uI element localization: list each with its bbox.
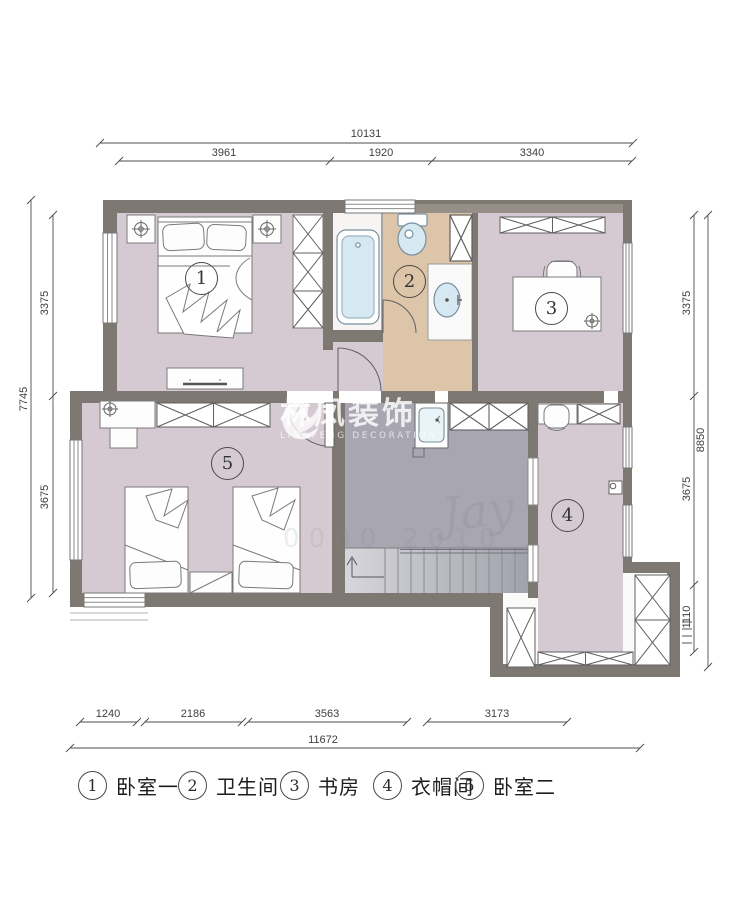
legend-number: 5 (455, 771, 484, 800)
wardrobe (293, 215, 323, 328)
window-top-bath (345, 200, 415, 213)
dim-top-total: 10131 (334, 128, 398, 140)
laundry-sink-icon (415, 403, 448, 448)
dim-right-seg-2: 1110 (681, 585, 693, 649)
window-right-cloakroom-lower (623, 505, 632, 557)
window-right-study (623, 243, 632, 333)
legend-label: 卧室二 (493, 771, 556, 800)
legend-item-bedroom1: 1 卧室一 (78, 771, 179, 799)
wall-control-panel-icon (609, 481, 622, 494)
room-badge-cloakroom: 4 (551, 499, 584, 532)
dim-bottom-seg-1: 2186 (161, 708, 225, 720)
dim-left-total: 7745 (18, 367, 30, 431)
dim-top-seg-0: 3961 (192, 147, 256, 159)
hallway-cabinet (450, 403, 528, 430)
dim-bottom-seg-3: 3173 (465, 708, 529, 720)
wardrobe-left (507, 608, 535, 667)
bathtub-icon (337, 230, 379, 324)
legend-number: 3 (280, 771, 309, 800)
room-badge-bedroom1: 1 (185, 262, 218, 295)
study-wall-cabinet (500, 217, 605, 233)
tv-cabinet (167, 368, 243, 389)
window-bottom-bedroom2 (84, 593, 145, 607)
bay-window-sill-lines (70, 613, 148, 620)
dim-right-seg-1: 3675 (681, 457, 693, 521)
single-bed-a (125, 487, 188, 593)
dim-bottom-seg-2: 3563 (295, 708, 359, 720)
chair (544, 405, 569, 431)
window-left-bedroom2 (70, 440, 82, 560)
room-badge-bathroom: 2 (393, 265, 426, 298)
dim-left-seg-1: 3675 (39, 465, 51, 529)
staircase (345, 548, 528, 593)
legend-item-study: 3 书房 (280, 771, 360, 799)
dim-bottom-total: 11672 (291, 734, 355, 746)
floor-plan-canvas: 10131 3961 1920 3340 7745 3375 3675 3375… (0, 0, 740, 900)
nightstand-between-beds (190, 572, 232, 593)
legend-label: 卧室一 (116, 771, 179, 800)
legend-label: 卫生间 (216, 771, 279, 800)
dim-top-seg-2: 3340 (500, 147, 564, 159)
toilet-icon (398, 214, 427, 255)
room-badge-study: 3 (535, 292, 568, 325)
legend-label: 书房 (318, 771, 360, 800)
legend-item-bathroom: 2 卫生间 (178, 771, 279, 799)
dim-right-total: 8850 (695, 408, 707, 472)
legend-item-bedroom2: 5 卧室二 (455, 771, 556, 799)
cloakroom-top-cabinet (578, 404, 620, 424)
legend-number: 2 (178, 771, 207, 800)
dim-right-seg-0: 3375 (681, 271, 693, 335)
wardrobe-right (635, 575, 670, 665)
window-left-bedroom1 (103, 233, 117, 323)
legend-number: 1 (78, 771, 107, 800)
legend-number: 4 (373, 771, 402, 800)
wardrobe-bottom (538, 652, 633, 665)
window-right-cloakroom-upper (623, 427, 632, 468)
dim-top-seg-1: 1920 (349, 147, 413, 159)
dim-bottom-seg-0: 1240 (76, 708, 140, 720)
room-badge-bedroom2: 5 (211, 447, 244, 480)
bedroom2-wall-cabinet (157, 403, 270, 427)
dim-left-seg-0: 3375 (39, 271, 51, 335)
bathroom-cabinet (450, 215, 472, 261)
single-bed-b (233, 487, 300, 593)
